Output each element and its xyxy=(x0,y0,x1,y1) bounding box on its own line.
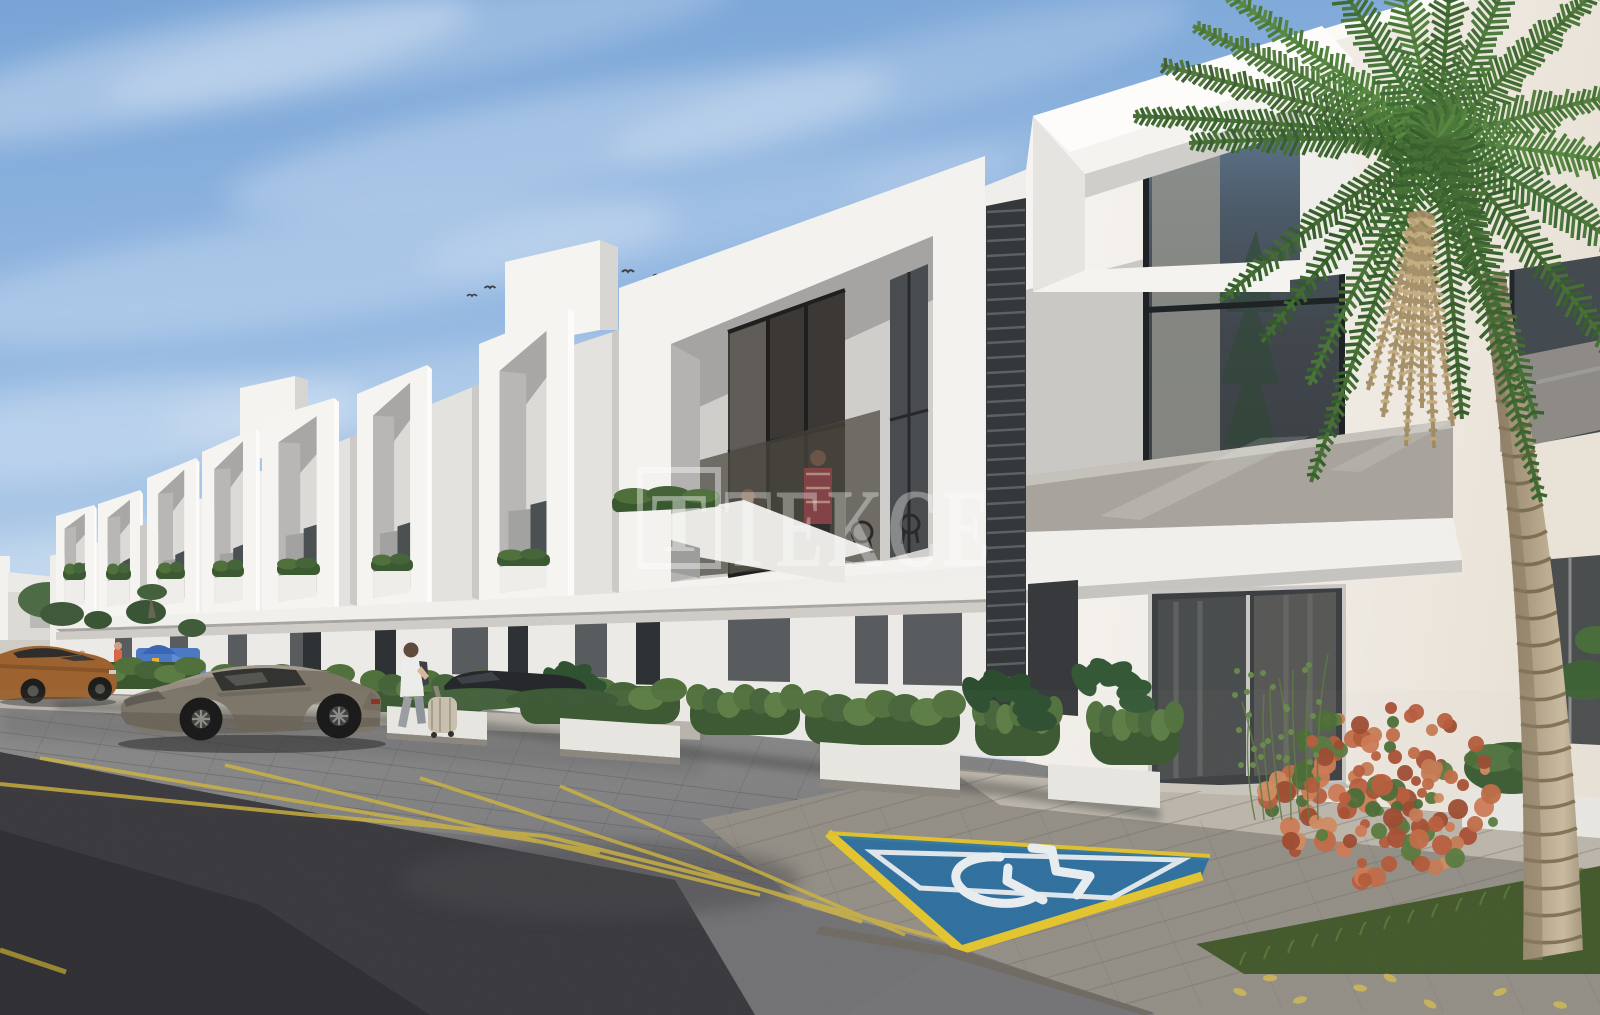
svg-text:TEKCE: TEKCE xyxy=(724,467,994,591)
svg-text:T: T xyxy=(651,477,707,570)
